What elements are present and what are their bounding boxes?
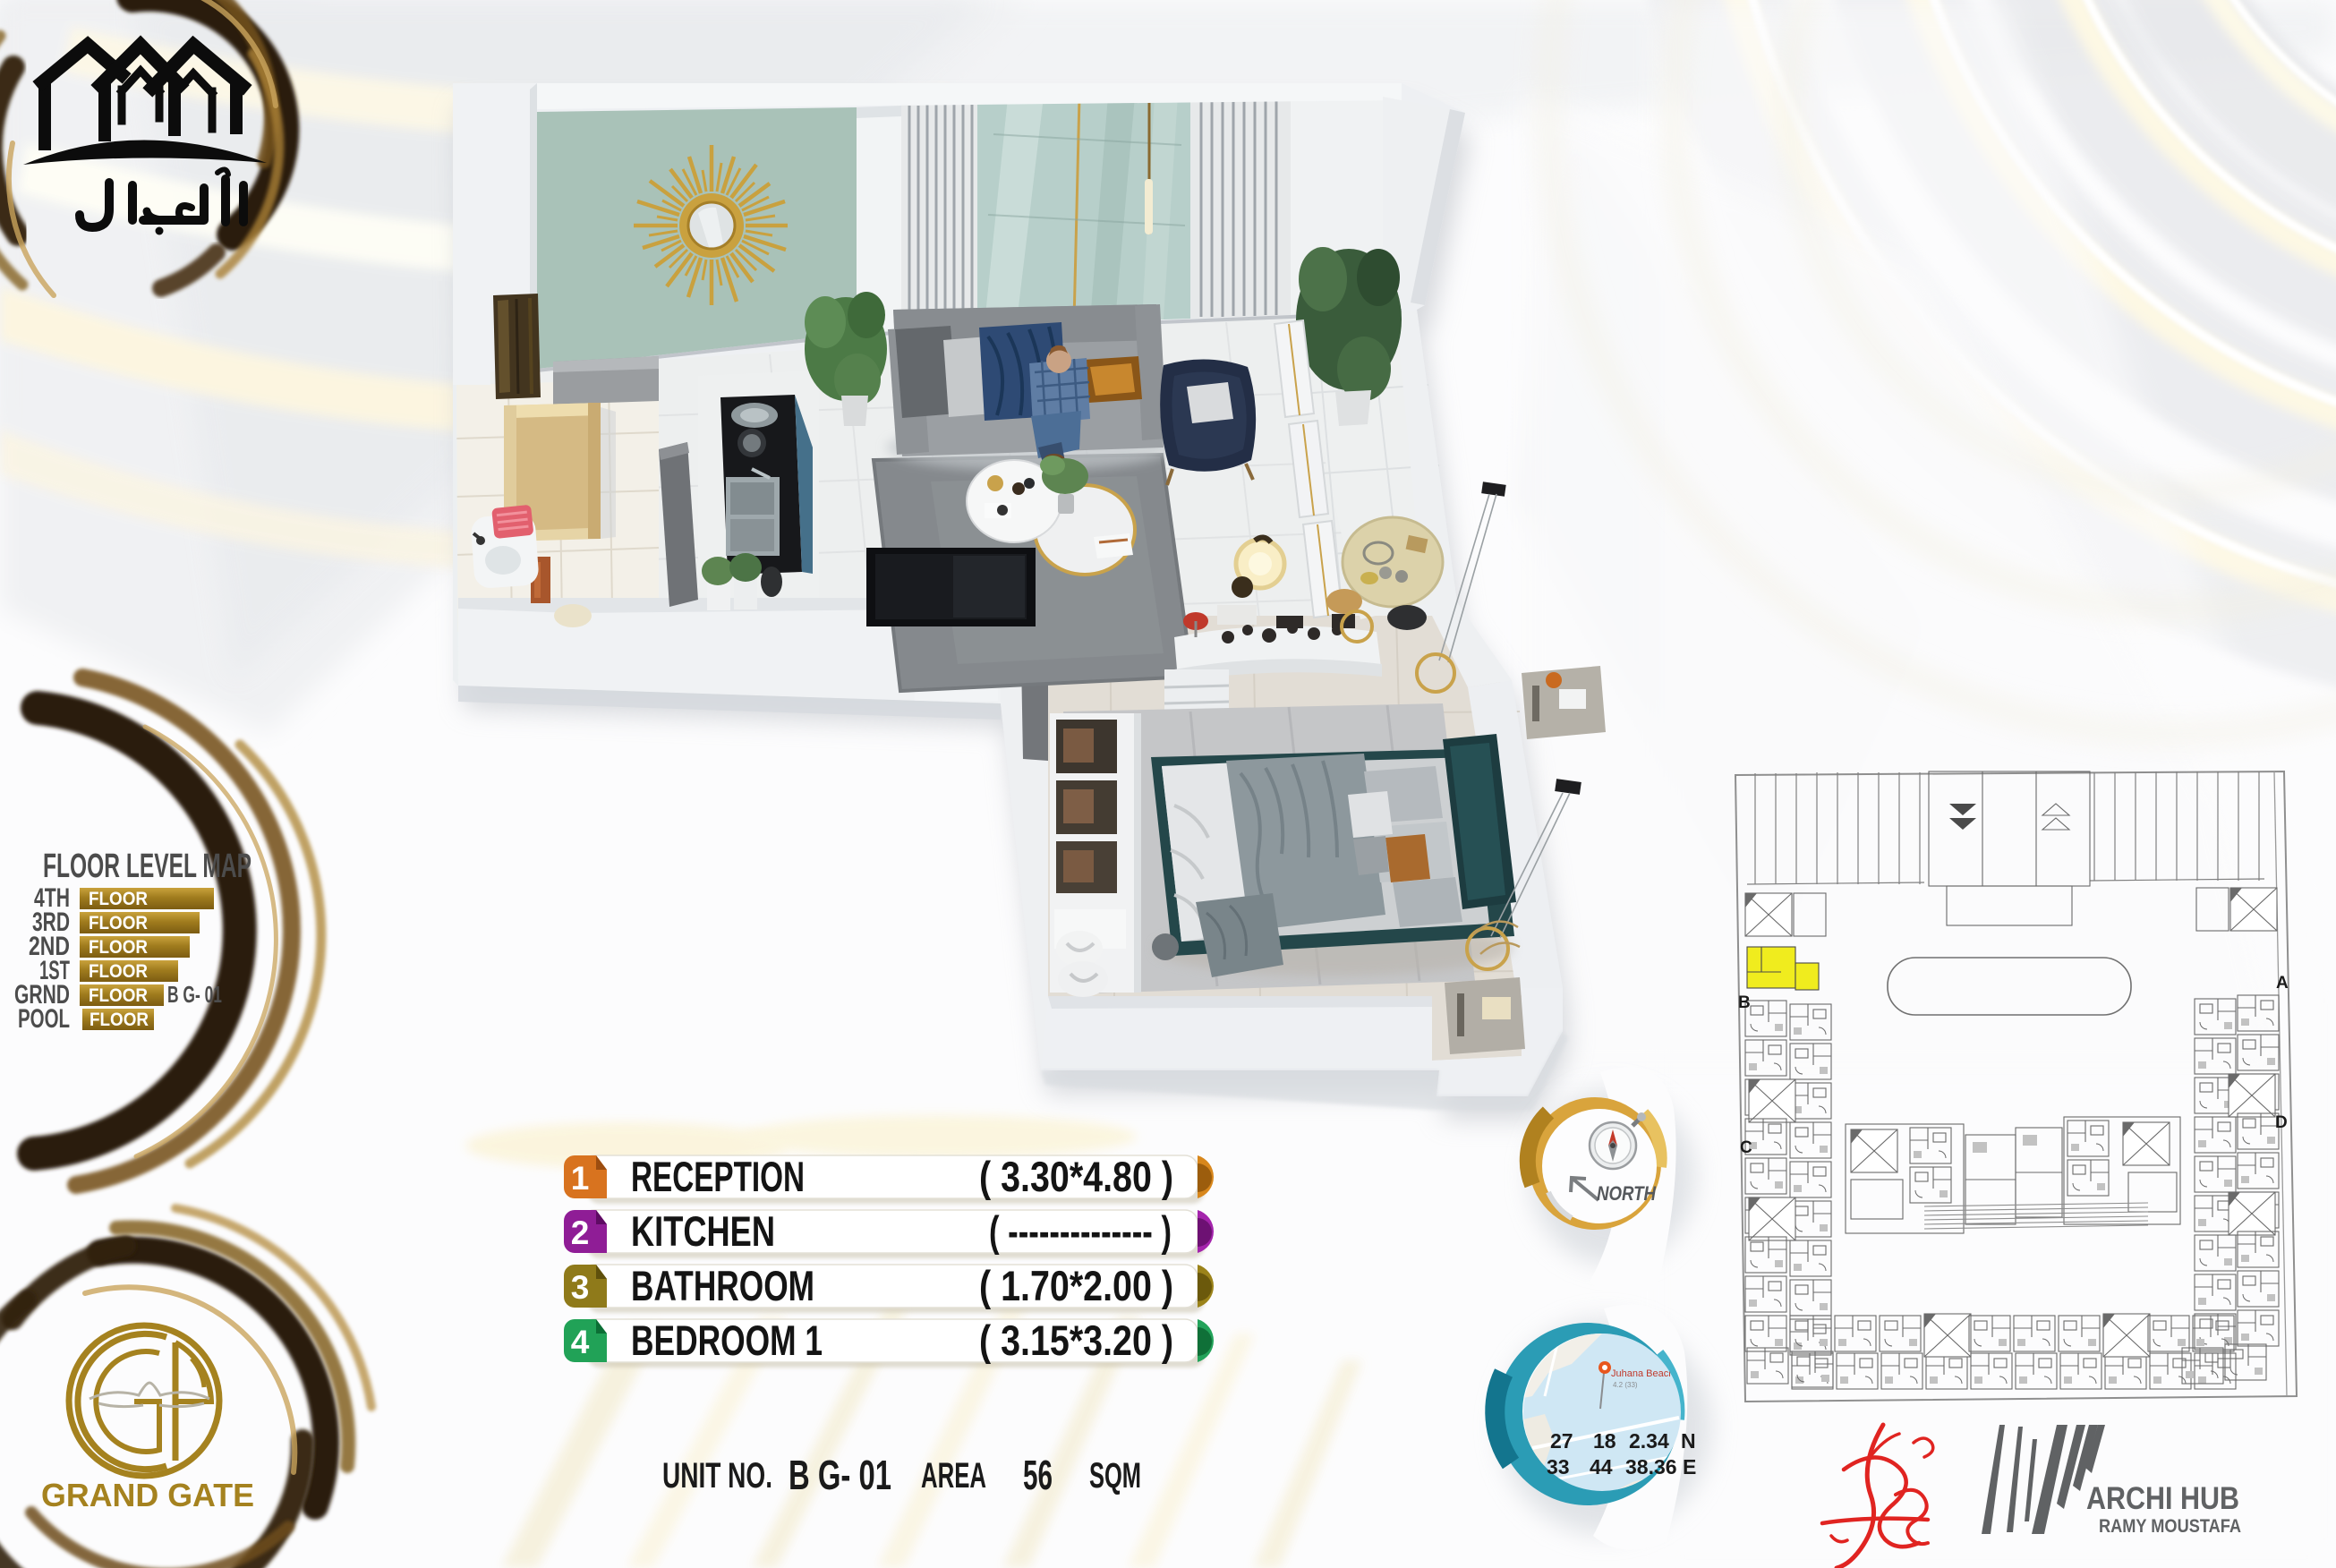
svg-text:FLOOR: FLOOR <box>89 913 148 933</box>
svg-text:44: 44 <box>1590 1455 1613 1479</box>
svg-text:FLOOR LEVEL MAP: FLOOR LEVEL MAP <box>43 848 252 885</box>
svg-text:38.36: 38.36 <box>1625 1455 1677 1479</box>
svg-text:BEDROOM 1: BEDROOM 1 <box>631 1317 823 1364</box>
svg-text:1: 1 <box>571 1160 590 1197</box>
svg-text:B G- 01: B G- 01 <box>789 1452 891 1498</box>
svg-text:POOL: POOL <box>18 1004 70 1034</box>
svg-text:FLOOR: FLOOR <box>89 985 148 1006</box>
svg-text:C: C <box>1740 1138 1752 1157</box>
svg-text:18: 18 <box>1593 1429 1616 1453</box>
svg-text:AREA: AREA <box>921 1456 986 1496</box>
svg-text:2: 2 <box>571 1214 590 1251</box>
svg-text:NORTH: NORTH <box>1597 1182 1657 1205</box>
svg-text:ARCHI HUB: ARCHI HUB <box>2086 1481 2239 1516</box>
svg-text:B: B <box>1738 993 1751 1012</box>
svg-text:E: E <box>1683 1455 1696 1479</box>
svg-text:FLOOR: FLOOR <box>90 1010 149 1030</box>
svg-text:FLOOR: FLOOR <box>89 889 148 909</box>
svg-text:KITCHEN: KITCHEN <box>631 1207 775 1255</box>
svg-text:UNIT NO.: UNIT NO. <box>662 1456 772 1496</box>
svg-text:GRAND GATE: GRAND GATE <box>41 1477 254 1513</box>
svg-text:27: 27 <box>1550 1429 1573 1453</box>
svg-text:33: 33 <box>1547 1455 1570 1479</box>
svg-text:SQM: SQM <box>1089 1456 1141 1496</box>
svg-text:2.34: 2.34 <box>1629 1429 1669 1453</box>
svg-text:( 3.15*3.20 ): ( 3.15*3.20 ) <box>979 1317 1173 1364</box>
svg-text:D: D <box>2275 1113 2288 1132</box>
svg-text:BATHROOM: BATHROOM <box>631 1262 814 1309</box>
svg-text:4: 4 <box>571 1324 590 1360</box>
svg-text:FLOOR: FLOOR <box>89 961 148 982</box>
svg-text:4.2 (33): 4.2 (33) <box>1613 1381 1638 1389</box>
svg-text:56: 56 <box>1023 1452 1053 1498</box>
svg-text:FLOOR: FLOOR <box>89 937 148 958</box>
svg-text:B G- 01: B G- 01 <box>167 981 222 1008</box>
svg-text:( -------------- ): ( -------------- ) <box>989 1207 1172 1255</box>
svg-text:N: N <box>1681 1429 1696 1453</box>
svg-text:3: 3 <box>571 1269 590 1306</box>
svg-text:( 1.70*2.00 ): ( 1.70*2.00 ) <box>979 1262 1173 1309</box>
svg-text:RAMY MOUSTAFA: RAMY MOUSTAFA <box>2099 1516 2241 1537</box>
svg-text:RECEPTION: RECEPTION <box>631 1153 805 1200</box>
svg-text:A: A <box>2276 974 2289 993</box>
svg-text:( 3.30*4.80 ): ( 3.30*4.80 ) <box>979 1153 1173 1200</box>
